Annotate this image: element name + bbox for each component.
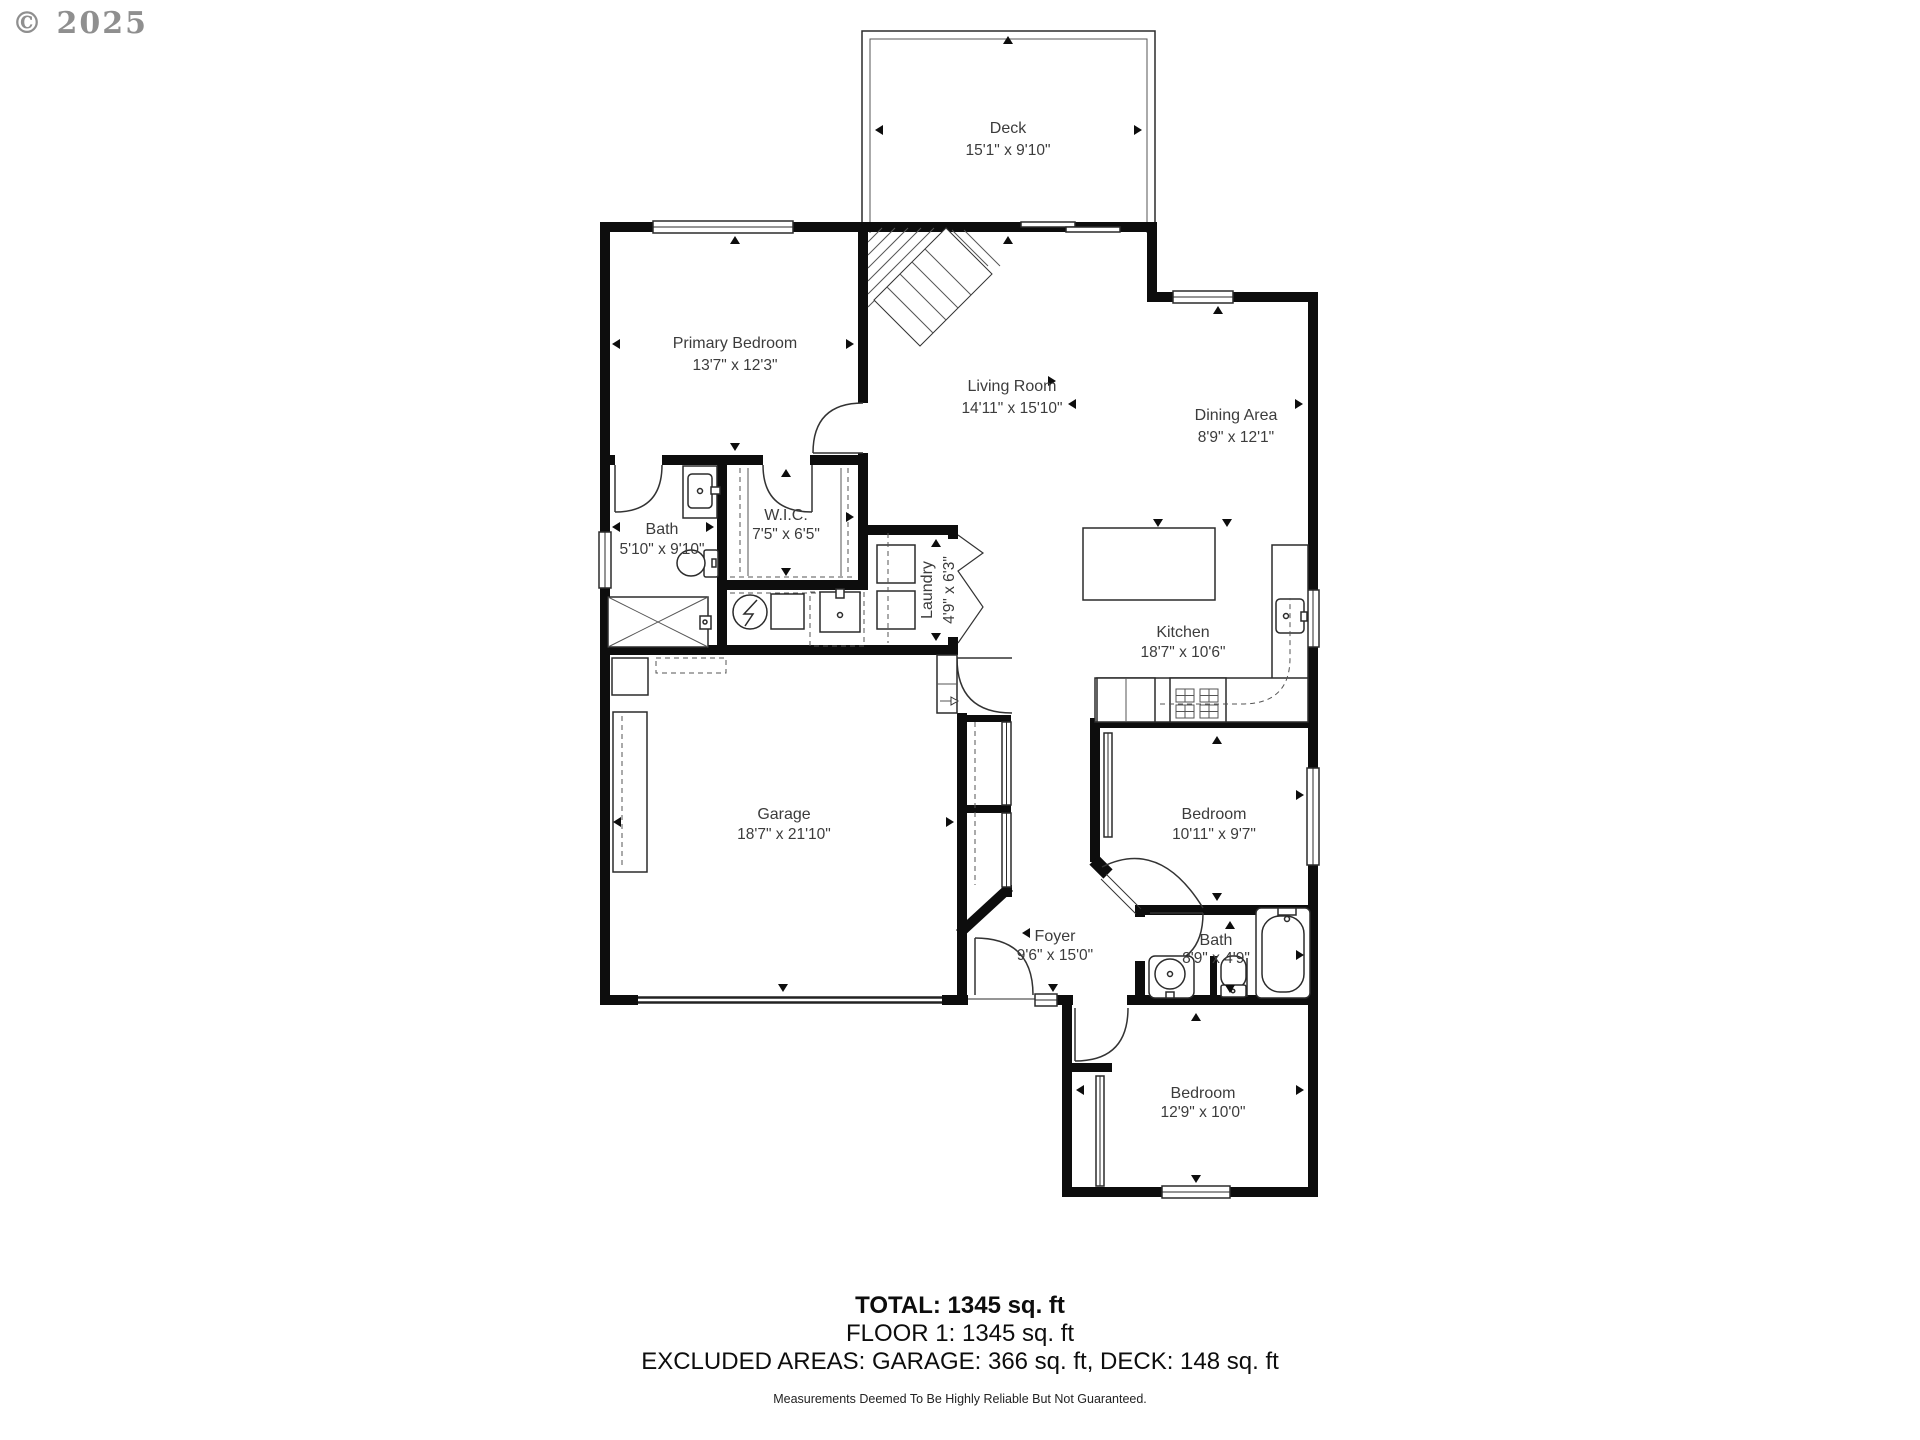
door-swing-bedroom-2 [1075,1008,1128,1061]
bedroom1-closet-doors [1104,733,1112,837]
svg-text:5'10" x 9'10": 5'10" x 9'10" [619,541,704,558]
svg-text:9'6" x 15'0": 9'6" x 15'0" [1017,947,1093,964]
svg-text:W.I.C.: W.I.C. [764,507,808,524]
room-label-bath-hall: Bath 8'9" x 4'9" [1182,932,1250,967]
svg-text:12'9" x 10'0": 12'9" x 10'0" [1160,1104,1245,1121]
room-label-bedroom-2: Bedroom 12'9" x 10'0" [1160,1085,1245,1121]
floor-plan-canvas: Deck 15'1" x 9'10" Primary Bedroom 13'7"… [0,0,1920,1440]
window [1173,291,1233,303]
room-label-kitchen: Kitchen 18'7" x 10'6" [1140,624,1225,661]
washer-dryer-icon [877,533,915,643]
room-label-bath-primary: Bath 5'10" x 9'10" [619,521,704,558]
refrigerator-icon [1097,678,1155,722]
garage-steps [937,655,958,713]
total-area-text: TOTAL: 1345 sq. ft [0,1292,1920,1320]
floor1-area-text: FLOOR 1: 1345 sq. ft [0,1320,1920,1348]
sidelight-window [1035,994,1057,1006]
svg-text:Bedroom: Bedroom [1171,1085,1236,1102]
svg-text:13'7" x 12'3": 13'7" x 12'3" [692,357,777,374]
door-swing-primary-bath [615,465,662,512]
door-swing-garage [957,658,1012,713]
room-label-bedroom-1: Bedroom 10'11" x 9'7" [1172,806,1256,843]
excluded-areas-text: EXCLUDED AREAS: GARAGE: 366 sq. ft, DECK… [0,1348,1920,1376]
window [1307,768,1319,865]
window [653,221,793,233]
dimension-arrows [612,36,1304,1183]
svg-text:15'1" x 9'10": 15'1" x 9'10" [965,142,1050,159]
svg-text:14'11" x 15'10": 14'11" x 15'10" [961,400,1062,417]
door-swing-primary-bedroom [813,403,863,453]
svg-text:Foyer: Foyer [1035,928,1077,945]
svg-text:Deck: Deck [990,120,1027,137]
water-heater-icon [733,595,767,629]
window [1307,590,1319,647]
garage-door [638,998,942,1003]
svg-text:Dining Area: Dining Area [1195,407,1278,424]
svg-text:Living Room: Living Room [968,378,1057,395]
window [1162,1186,1230,1198]
shower-icon [608,597,711,647]
svg-text:7'5" x 6'5": 7'5" x 6'5" [752,526,820,543]
floor-plan-page: © 2025 [0,0,1920,1440]
foyer-closet-doors [975,722,1011,887]
room-label-primary-bedroom: Primary Bedroom 13'7" x 12'3" [673,335,797,374]
svg-text:Laundry: Laundry [919,561,936,619]
kitchen-island [1083,528,1215,600]
hall-sink-icon [810,589,864,646]
svg-text:8'9" x 12'1": 8'9" x 12'1" [1198,429,1274,446]
disclaimer-text: Measurements Deemed To Be Highly Reliabl… [0,1392,1920,1406]
svg-text:Garage: Garage [757,806,810,823]
svg-text:Primary Bedroom: Primary Bedroom [673,335,797,352]
bedroom2-closet-doors [1096,1076,1104,1186]
svg-text:8'9" x 4'9": 8'9" x 4'9" [1182,950,1250,967]
room-label-garage: Garage 18'7" x 21'10" [737,806,831,843]
svg-text:Bath: Bath [646,521,679,538]
svg-text:10'11" x 9'7": 10'11" x 9'7" [1172,826,1256,843]
svg-text:Bedroom: Bedroom [1182,806,1247,823]
room-label-deck: Deck 15'1" x 9'10" [965,120,1050,159]
garage-storage [612,658,726,872]
vanity-sink-icon [683,466,720,518]
bifold-doors-laundry [958,535,983,643]
svg-text:Kitchen: Kitchen [1156,624,1209,641]
room-label-dining-area: Dining Area 8'9" x 12'1" [1195,407,1278,446]
room-label-living-room: Living Room 14'11" x 15'10" [961,378,1062,417]
svg-text:Bath: Bath [1200,932,1233,949]
stove-icon [1170,678,1226,722]
bathtub-icon [1256,908,1310,998]
svg-text:18'7" x 21'10": 18'7" x 21'10" [737,826,831,843]
staircase [868,228,1000,346]
hall-cabinet [771,594,804,629]
room-label-laundry: Laundry 4'9" x 6'3" [919,556,958,624]
svg-text:4'9" x 6'3": 4'9" x 6'3" [941,556,958,624]
window [599,532,611,588]
svg-text:18'7" x 10'6": 18'7" x 10'6" [1140,644,1225,661]
